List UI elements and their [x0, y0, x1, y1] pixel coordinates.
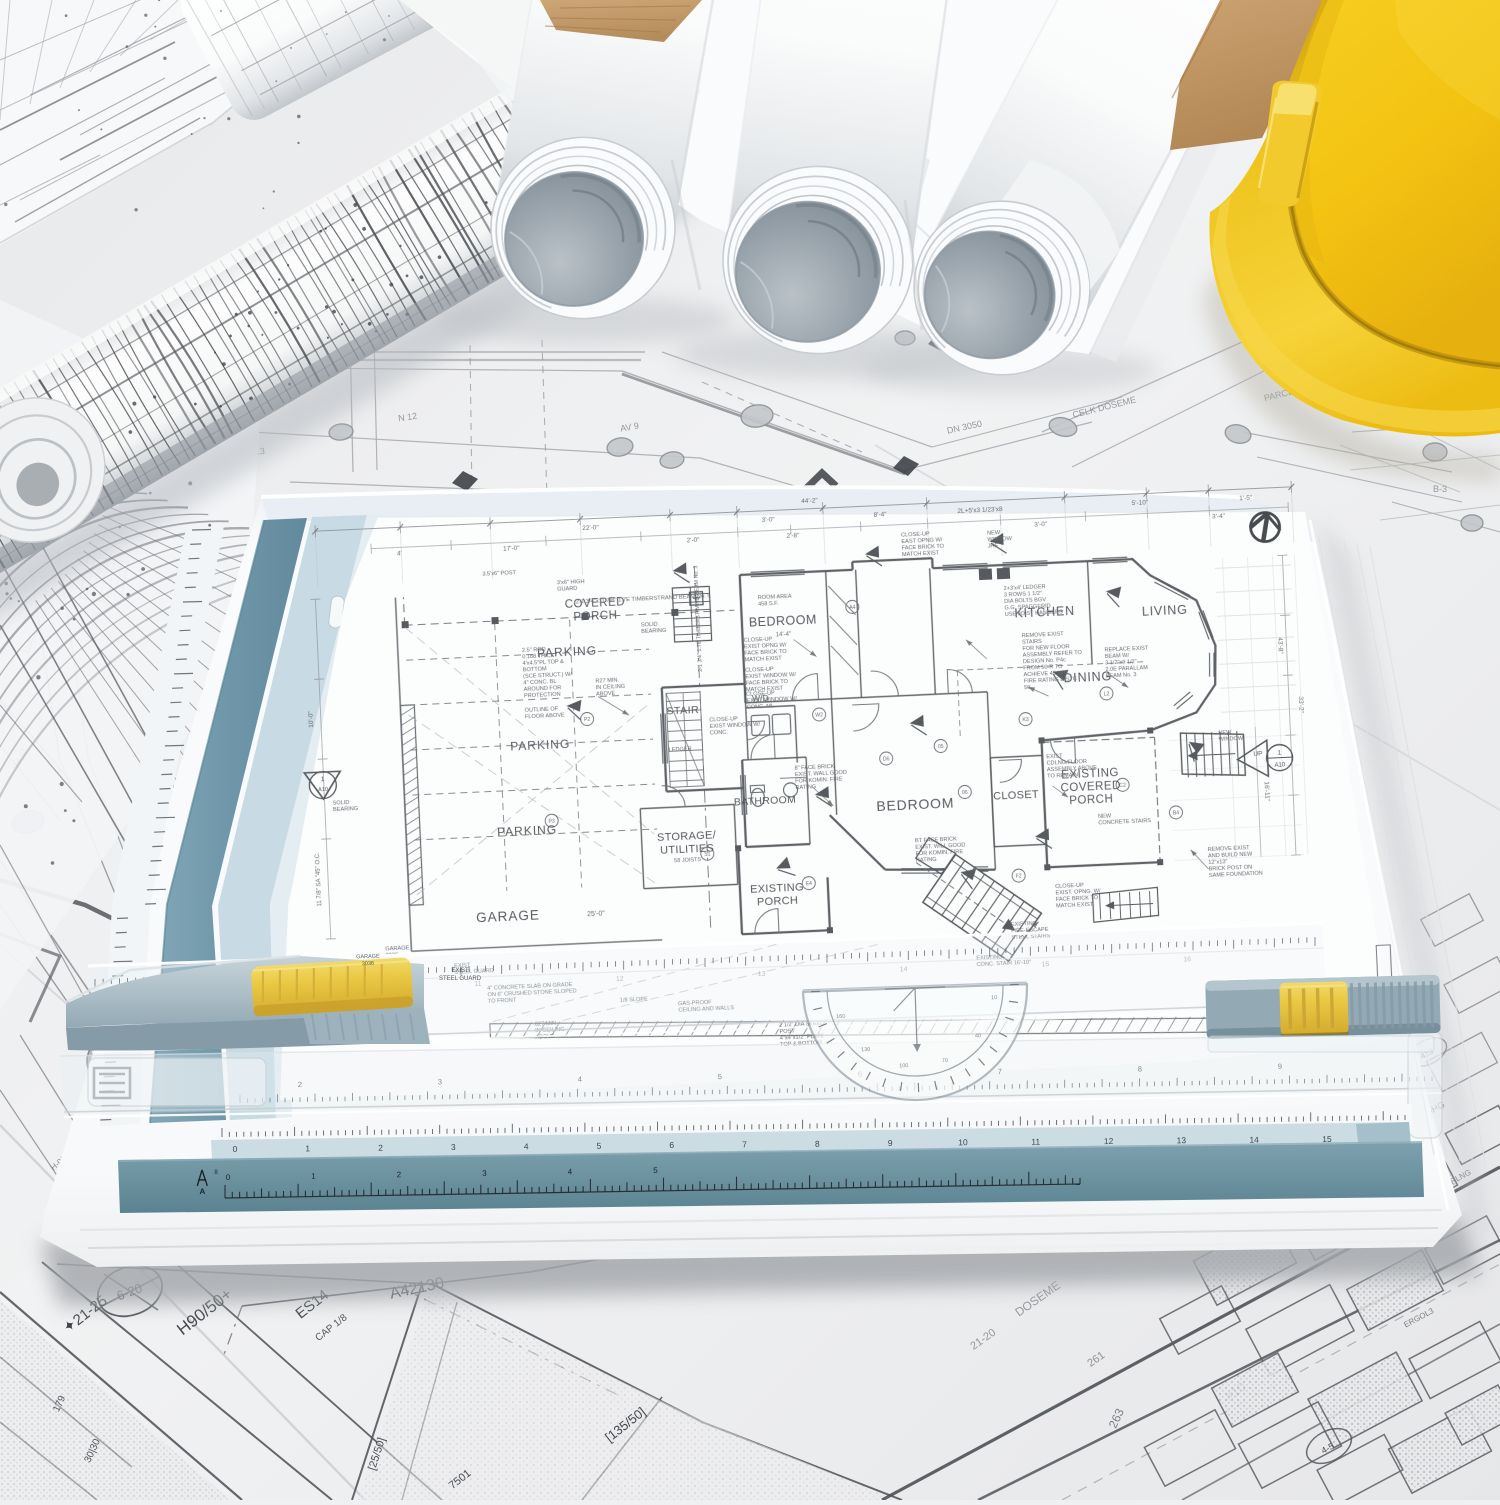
svg-text:A10: A10	[318, 787, 328, 793]
svg-text:UTILITIES: UTILITIES	[660, 842, 715, 856]
svg-text:70: 70	[942, 1058, 948, 1064]
svg-text:16'-11": 16'-11"	[1263, 781, 1271, 802]
svg-text:BEARING: BEARING	[333, 806, 358, 813]
svg-text:EXISTING: EXISTING	[750, 881, 804, 895]
svg-text:10: 10	[991, 995, 997, 1001]
svg-text:3'-0": 3'-0"	[762, 516, 776, 524]
svg-text:2'-8": 2'-8"	[786, 532, 800, 540]
svg-text:L2: L2	[1104, 692, 1110, 698]
svg-text:14: 14	[900, 966, 908, 973]
svg-text:K3: K3	[1022, 717, 1029, 723]
svg-text:3: 3	[482, 1169, 487, 1178]
svg-text:40: 40	[975, 1033, 981, 1039]
svg-text:3'-4": 3'-4"	[1212, 513, 1226, 521]
svg-text:13: 13	[1177, 1135, 1187, 1145]
svg-text:2: 2	[378, 1143, 383, 1153]
svg-text:WINDOW: WINDOW	[987, 536, 1013, 543]
svg-text:EXIST: EXIST	[451, 968, 469, 974]
svg-text:1: 1	[305, 1143, 310, 1153]
svg-text:44'-2": 44'-2"	[801, 497, 819, 505]
svg-text:0: 0	[226, 1173, 231, 1182]
svg-text:A4: A4	[849, 605, 856, 611]
svg-text:GARAGE: GARAGE	[385, 945, 409, 952]
svg-text:15: 15	[1041, 961, 1049, 968]
svg-text:A: A	[199, 1187, 205, 1196]
svg-text:GUARD: GUARD	[557, 586, 577, 593]
svg-text:8'-4": 8'-4"	[874, 511, 888, 519]
svg-text:PARKING: PARKING	[510, 737, 571, 754]
svg-text:1: 1	[1277, 750, 1281, 757]
svg-text:12: 12	[616, 976, 624, 983]
svg-text:9: 9	[1278, 1062, 1282, 1071]
svg-text:8: 8	[1138, 1064, 1142, 1073]
svg-text:LIVING: LIVING	[1142, 603, 1188, 619]
svg-text:7: 7	[742, 1139, 747, 1149]
svg-text:LEDGER: LEDGER	[668, 746, 691, 753]
svg-text:8: 8	[815, 1139, 820, 1149]
svg-text:P2: P2	[584, 717, 591, 723]
svg-text:STAIR: STAIR	[666, 704, 699, 717]
svg-text:43'-8": 43'-8"	[1276, 637, 1284, 655]
svg-text:58 JOISTS: 58 JOISTS	[674, 857, 701, 864]
svg-text:A10: A10	[1274, 762, 1286, 769]
svg-text:D6: D6	[883, 757, 890, 763]
svg-text:PORCH: PORCH	[757, 895, 799, 909]
svg-text:1: 1	[321, 776, 325, 783]
svg-text:3036: 3036	[362, 961, 374, 967]
svg-text:9: 9	[888, 1138, 893, 1148]
svg-text:CLOSET: CLOSET	[993, 789, 1039, 803]
svg-text:16: 16	[1183, 956, 1191, 963]
svg-text:13: 13	[758, 971, 766, 978]
svg-text:W2: W2	[815, 713, 823, 719]
svg-text:160: 160	[836, 1014, 845, 1020]
svg-text:12: 12	[1104, 1136, 1114, 1146]
svg-text:JHE: JHE	[988, 543, 999, 549]
svg-text:22'-0": 22'-0"	[582, 524, 600, 532]
svg-text:3'-0": 3'-0"	[1034, 521, 1048, 529]
svg-text:130: 130	[861, 1047, 870, 1053]
svg-text:5'-10": 5'-10"	[1131, 499, 1149, 507]
svg-text:1'-5": 1'-5"	[1239, 495, 1253, 503]
svg-text:4: 4	[578, 1075, 582, 1084]
svg-text:05: 05	[938, 744, 944, 750]
svg-text:CONC. ML: CONC. ML	[747, 704, 775, 711]
svg-text:4': 4'	[397, 550, 402, 557]
svg-text:4: 4	[568, 1167, 573, 1176]
svg-text:5: 5	[596, 1141, 601, 1151]
svg-text:F2: F2	[1016, 874, 1022, 880]
svg-text:17'-0": 17'-0"	[503, 545, 521, 553]
svg-text:CONC.: CONC.	[710, 730, 729, 737]
svg-text:1: 1	[311, 1172, 316, 1181]
svg-text:UP: UP	[1253, 750, 1262, 757]
svg-text:PORCH: PORCH	[573, 610, 618, 624]
svg-text:PORCH: PORCH	[1069, 793, 1114, 807]
svg-text:GARAGE: GARAGE	[356, 954, 380, 961]
svg-text:0: 0	[232, 1144, 237, 1154]
svg-text:4: 4	[524, 1141, 529, 1151]
svg-text:3: 3	[451, 1142, 456, 1152]
svg-text:B-3: B-3	[1433, 484, 1447, 494]
svg-text:GARAGE: GARAGE	[476, 907, 540, 925]
svg-text:2: 2	[397, 1170, 402, 1179]
svg-text:06: 06	[962, 790, 968, 796]
svg-text:STEEL GUARD: STEEL GUARD	[439, 976, 482, 982]
svg-text:2: 2	[298, 1080, 302, 1089]
svg-text:RATING: RATING	[916, 857, 937, 864]
svg-text:458 S.F.: 458 S.F.	[758, 601, 779, 608]
svg-text:BEARING: BEARING	[641, 628, 666, 635]
svg-text:E4: E4	[806, 881, 813, 887]
svg-text:10: 10	[958, 1137, 968, 1147]
svg-text:6: 6	[669, 1140, 674, 1150]
svg-text:100: 100	[899, 1063, 908, 1069]
svg-text:7: 7	[998, 1067, 1002, 1076]
svg-text:14: 14	[1249, 1135, 1259, 1145]
svg-text:10'-0": 10'-0"	[307, 710, 315, 728]
svg-text:5: 5	[718, 1072, 722, 1081]
svg-text:PARKING: PARKING	[497, 823, 558, 840]
svg-text:5: 5	[653, 1166, 658, 1175]
svg-text:14'-4": 14'-4"	[776, 632, 792, 639]
svg-text:WINDOW: WINDOW	[1219, 736, 1245, 743]
svg-text:B4: B4	[1173, 810, 1180, 816]
svg-text:2'-0": 2'-0"	[686, 537, 700, 545]
svg-text:11: 11	[1031, 1137, 1040, 1147]
svg-text:25'-0": 25'-0"	[587, 910, 606, 918]
svg-text:3: 3	[438, 1077, 442, 1086]
